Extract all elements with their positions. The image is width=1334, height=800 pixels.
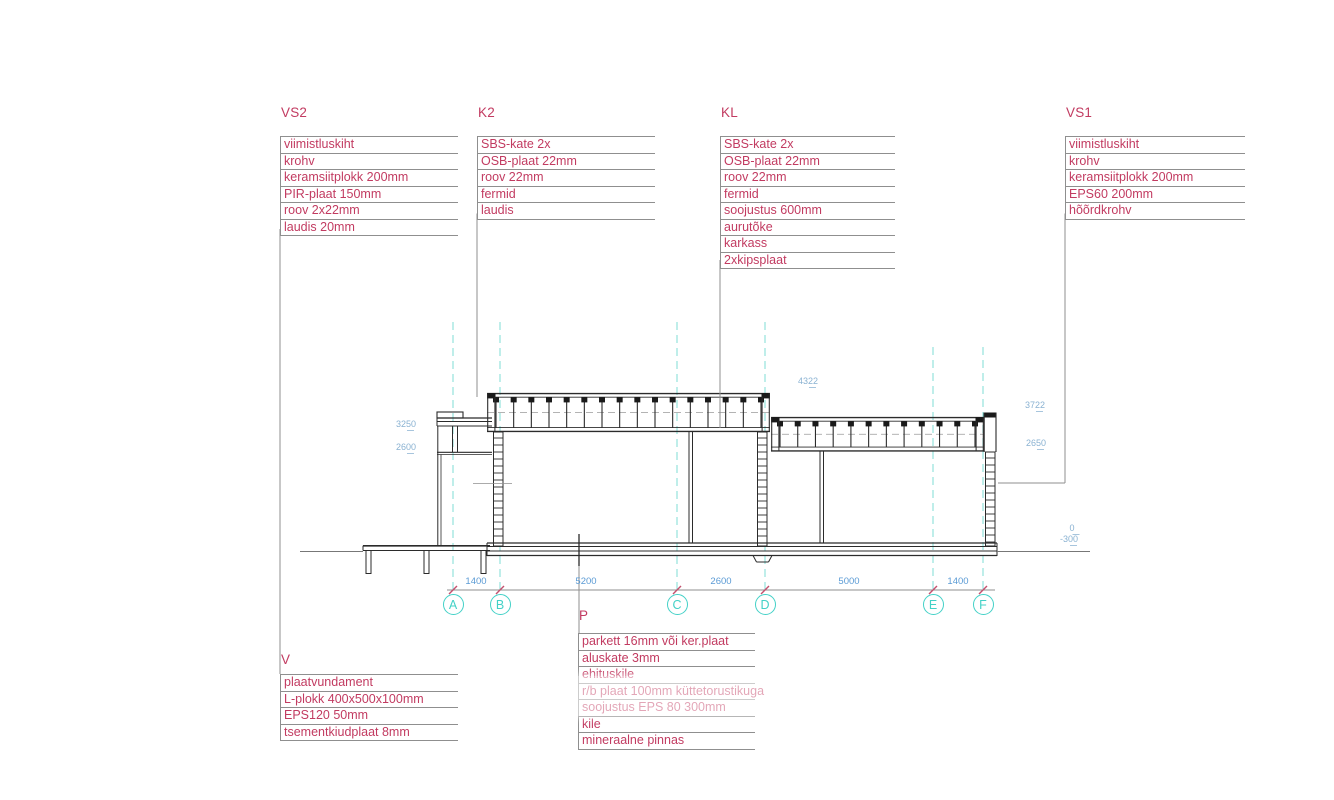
spec-item: 2xkipsplaat — [721, 253, 895, 270]
spec-item: parkett 16mm või ker.plaat — [579, 634, 755, 651]
spec-item: PIR-plaat 150mm — [281, 187, 458, 204]
dimension-label: 1400 — [947, 577, 968, 587]
spec-item: keramsiitplokk 200mm — [281, 170, 458, 187]
section-drawing-page: VS2viimistluskihtkrohvkeramsiitplokk 200… — [0, 0, 1334, 800]
spec-rows-kl: SBS-kate 2xOSB-plaat 22mmroov 22mmfermid… — [720, 136, 895, 269]
spec-item: aurutõke — [721, 220, 895, 237]
spec-item: viimistluskiht — [1066, 137, 1245, 154]
spec-item: karkass — [721, 236, 895, 253]
dimension-label: 5200 — [575, 577, 596, 587]
spec-list-kl: KLSBS-kate 2xOSB-plaat 22mmroov 22mmferm… — [720, 105, 895, 269]
spec-item: fermid — [721, 187, 895, 204]
spec-rows-v: plaatvundamentL-plokk 400x500x100mmEPS12… — [280, 674, 458, 741]
level-label: 3722 — [1025, 401, 1045, 412]
spec-list-k2: K2SBS-kate 2xOSB-plaat 22mmroov 22mmferm… — [477, 105, 655, 220]
dimension-label: 5000 — [838, 577, 859, 587]
level-label: -300 — [1060, 535, 1078, 546]
spec-item: kile — [579, 717, 755, 734]
spec-item: roov 22mm — [721, 170, 895, 187]
dimension-label: 1400 — [465, 577, 486, 587]
spec-item: plaatvundament — [281, 675, 458, 692]
spec-item: EPS60 200mm — [1066, 187, 1245, 204]
grid-bubble-e: E — [923, 594, 944, 615]
spec-item: keramsiitplokk 200mm — [1066, 170, 1245, 187]
spec-item: tsementkiudplaat 8mm — [281, 725, 458, 742]
spec-rows-p: parkett 16mm või ker.plaataluskate 3mmeh… — [578, 633, 755, 750]
level-label: 2650 — [1026, 439, 1046, 450]
spec-item: SBS-kate 2x — [721, 137, 895, 154]
spec-item: aluskate 3mm — [579, 651, 755, 668]
spec-item: roov 22mm — [478, 170, 655, 187]
spec-item: OSB-plaat 22mm — [478, 154, 655, 171]
grid-bubble-b: B — [490, 594, 511, 615]
spec-item: viimistluskiht — [281, 137, 458, 154]
spec-item: mineraalne pinnas — [579, 733, 755, 750]
grid-bubble-a: A — [443, 594, 464, 615]
grid-bubble-d: D — [755, 594, 776, 615]
spec-item: hõõrdkrohv — [1066, 203, 1245, 220]
grid-bubble-f: F — [973, 594, 994, 615]
spec-item: krohv — [281, 154, 458, 171]
spec-item: L-plokk 400x500x100mm — [281, 692, 458, 709]
spec-item: r/b plaat 100mm küttetorustikuga — [579, 684, 755, 701]
spec-item: laudis — [478, 203, 655, 220]
spec-item: ehituskile — [579, 667, 755, 684]
spec-item: roov 2x22mm — [281, 203, 458, 220]
spec-item: fermid — [478, 187, 655, 204]
dimension-label: 2600 — [710, 577, 731, 587]
level-label: 4322 — [798, 377, 818, 388]
spec-rows-k2: SBS-kate 2xOSB-plaat 22mmroov 22mmfermid… — [477, 136, 655, 220]
spec-list-v: VplaatvundamentL-plokk 400x500x100mmEPS1… — [280, 652, 458, 741]
spec-list-vs1: VS1viimistluskihtkrohvkeramsiitplokk 200… — [1065, 105, 1245, 220]
spec-item: EPS120 50mm — [281, 708, 458, 725]
grid-bubble-c: C — [667, 594, 688, 615]
spec-list-title-k2: K2 — [478, 105, 655, 121]
spec-rows-vs1: viimistluskihtkrohvkeramsiitplokk 200mmE… — [1065, 136, 1245, 220]
level-label: 2600 — [396, 443, 416, 454]
level-label: 3250 — [396, 420, 416, 431]
spec-item: OSB-plaat 22mm — [721, 154, 895, 171]
spec-item: soojustus 600mm — [721, 203, 895, 220]
spec-item: soojustus EPS 80 300mm — [579, 700, 755, 717]
spec-list-title-p: P — [579, 608, 755, 624]
spec-list-title-vs1: VS1 — [1066, 105, 1245, 121]
spec-item: krohv — [1066, 154, 1245, 171]
spec-list-vs2: VS2viimistluskihtkrohvkeramsiitplokk 200… — [280, 105, 458, 236]
spec-item: laudis 20mm — [281, 220, 458, 237]
spec-list-title-kl: KL — [721, 105, 895, 121]
spec-list-p: Pparkett 16mm või ker.plaataluskate 3mme… — [578, 608, 755, 750]
spec-list-title-v: V — [281, 652, 458, 668]
spec-rows-vs2: viimistluskihtkrohvkeramsiitplokk 200mmP… — [280, 136, 458, 236]
spec-item: SBS-kate 2x — [478, 137, 655, 154]
spec-list-title-vs2: VS2 — [281, 105, 458, 121]
